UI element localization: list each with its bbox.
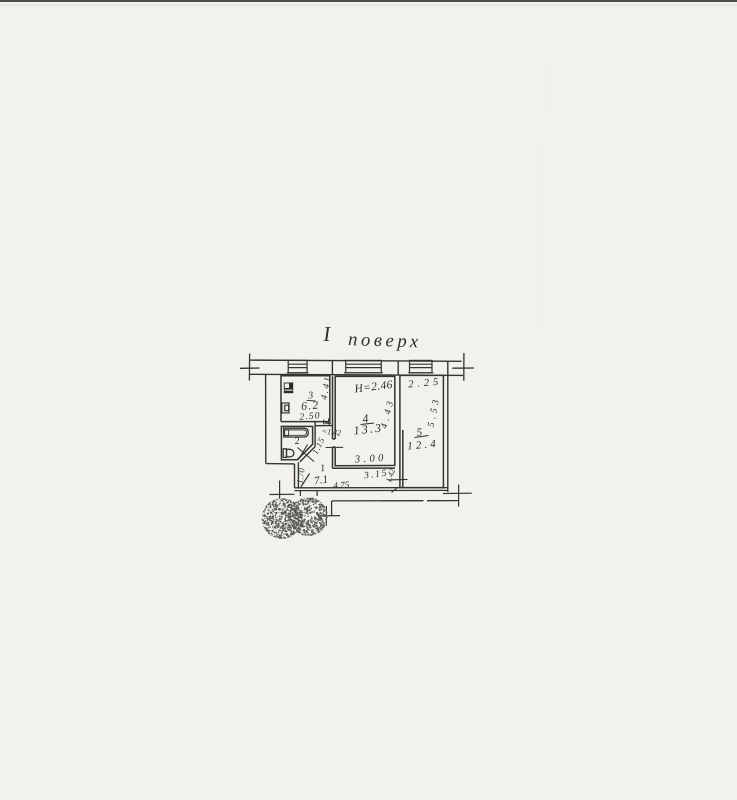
svg-text:7.1: 7.1: [313, 474, 329, 488]
svg-text:4.75: 4.75: [333, 479, 350, 490]
svg-text:3.00: 3.00: [354, 453, 385, 466]
svg-text:2.50: 2.50: [299, 411, 320, 423]
